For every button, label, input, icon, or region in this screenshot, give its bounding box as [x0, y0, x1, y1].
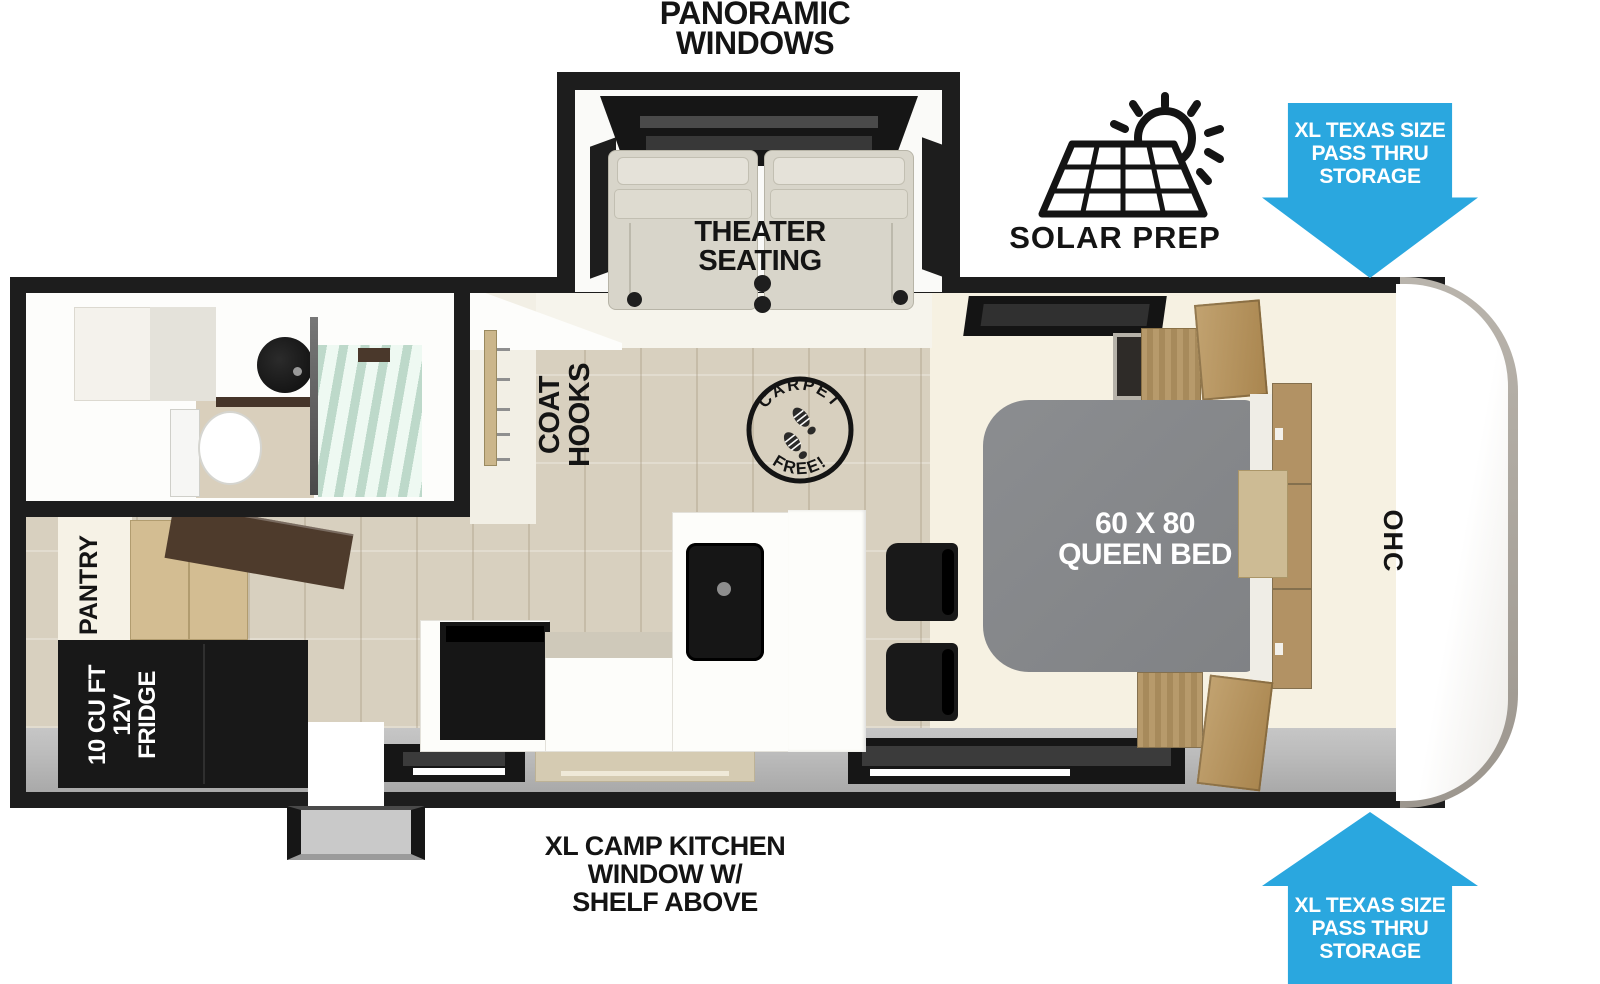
handle [1275, 643, 1283, 655]
fridge-line2: 12V [110, 665, 135, 765]
cupholder [754, 296, 771, 313]
title-line2: WINDOWS [525, 28, 985, 58]
dinette-chair-1 [886, 543, 958, 621]
entry-doorway [308, 722, 384, 808]
title-line1: PANORAMIC [525, 0, 985, 28]
pantry-label: PANTRY [65, 535, 115, 635]
bedroom-window [963, 296, 1167, 336]
ohc-label: OHC [1367, 496, 1417, 586]
line2: PASS THRU [1262, 142, 1478, 165]
kitchen-window-right [848, 738, 1185, 784]
counter-top-edge [545, 632, 675, 658]
fridge-label: 10 CU FT 12V FRIDGE [79, 645, 165, 785]
toilet-tank [170, 409, 200, 497]
faucet [717, 582, 731, 596]
storage-arrow-bottom-text: XL TEXAS SIZE PASS THRU STORAGE [1262, 894, 1478, 963]
line1: XL TEXAS SIZE [1262, 119, 1478, 142]
cupholder [627, 292, 642, 307]
coat-hooks-line1: COAT [535, 363, 565, 467]
camp-kitchen-label: XL CAMP KITCHEN WINDOW W/ SHELF ABOVE [470, 832, 860, 916]
bathroom-counter [150, 307, 216, 401]
queen-bed-label: 60 X 80 QUEEN BED [1005, 508, 1285, 570]
toilet-bowl [198, 411, 262, 485]
panoramic-window-right [922, 137, 948, 278]
ohc-text: OHC [1378, 510, 1406, 573]
dinette-chair-2 [886, 643, 958, 721]
chair-back [942, 649, 954, 715]
wardrobe-door-right [1194, 299, 1268, 400]
bed-bench-door [1197, 675, 1274, 792]
carpet-free-stamp: CARPET FREE! [744, 374, 856, 486]
seat-back [614, 189, 752, 219]
page-title: PANORAMIC WINDOWS [525, 0, 985, 58]
window-glass [640, 116, 878, 128]
line3: STORAGE [1262, 165, 1478, 188]
coat-hooks-rail [484, 330, 497, 466]
coat-hooks-label: COAT HOOKS [500, 345, 630, 485]
window-glass [646, 136, 872, 150]
shower-shelf [358, 348, 390, 362]
camp-line3: SHELF ABOVE [470, 888, 860, 916]
window-sill [870, 769, 1070, 776]
window-highlight [561, 771, 729, 776]
floorplan-canvas: COAT HOOKS PANTRY 10 CU FT 12V FRIDGE OH… [0, 0, 1600, 984]
window-glass [862, 746, 1171, 766]
storage-arrow-top: XL TEXAS SIZE PASS THRU STORAGE [1262, 103, 1478, 278]
vanity-edge [216, 397, 316, 407]
wardrobe-door-left [1141, 328, 1201, 402]
cupholder [893, 290, 908, 305]
headrest [617, 157, 749, 185]
bed-size: 60 X 80 [1005, 508, 1285, 539]
pantry-text: PANTRY [77, 535, 103, 635]
line1: XL TEXAS SIZE [1262, 894, 1478, 917]
coat-hooks-line2: HOOKS [565, 363, 595, 467]
sink-drain [293, 367, 302, 376]
counter-panel [788, 510, 866, 752]
shower-rail [310, 317, 318, 495]
entry-step [287, 806, 425, 860]
wall-bottom [10, 792, 1445, 808]
cupholder [754, 275, 771, 292]
line2: PASS THRU [1262, 917, 1478, 940]
bed-type: QUEEN BED [1005, 539, 1285, 570]
storage-arrow-top-text: XL TEXAS SIZE PASS THRU STORAGE [1262, 119, 1478, 188]
camp-line2: WINDOW W/ [470, 860, 860, 888]
line3: STORAGE [1262, 940, 1478, 963]
bed-bench [1137, 672, 1203, 748]
headrest [773, 157, 905, 185]
fridge-door-split [203, 644, 205, 784]
wardrobe-interior [1117, 337, 1141, 396]
handle [1275, 428, 1283, 440]
fridge-line3: FRIDGE [135, 665, 160, 765]
bathroom [10, 277, 470, 517]
window-glass [981, 304, 1150, 326]
shower-glass [318, 345, 422, 497]
theater-line1: THEATER [605, 218, 915, 247]
counter-mid [545, 632, 675, 752]
kitchen-sink [686, 543, 764, 661]
window-sill [413, 768, 505, 775]
theater-seating-label: THEATER SEATING [605, 218, 915, 276]
divider [1272, 588, 1312, 590]
bathroom-sink [257, 337, 313, 393]
storage-arrow-bottom: XL TEXAS SIZE PASS THRU STORAGE [1262, 812, 1478, 984]
solar-panel-icon [1022, 86, 1232, 222]
solar-prep-label: SOLAR PREP [990, 222, 1240, 254]
stove-lid [446, 626, 544, 642]
chair-back [942, 549, 954, 615]
theater-line2: SEATING [605, 247, 915, 276]
stove [440, 622, 550, 740]
seat-back [770, 189, 908, 219]
camp-line1: XL CAMP KITCHEN [470, 832, 860, 860]
fridge-line1: 10 CU FT [85, 665, 110, 765]
window-glass [403, 752, 505, 766]
